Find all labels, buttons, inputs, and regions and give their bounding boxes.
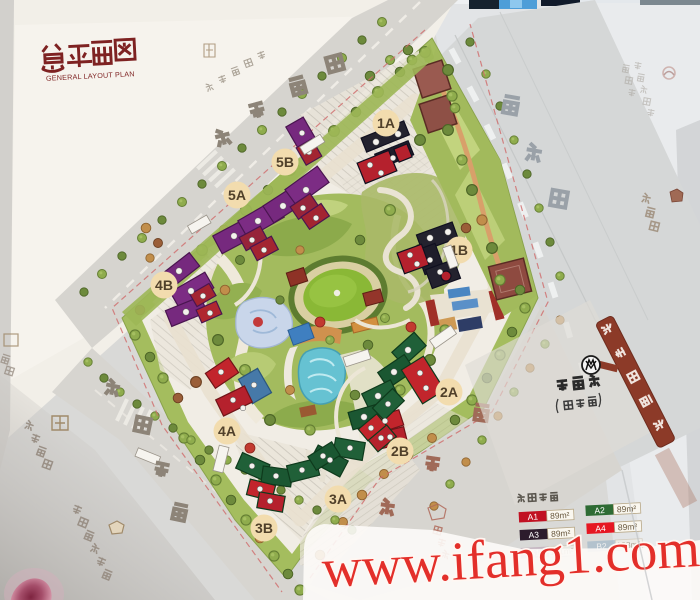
svg-text:5B: 5B <box>276 154 294 170</box>
svg-text:4B: 4B <box>155 277 173 293</box>
svg-text:2B: 2B <box>391 443 409 459</box>
svg-text:3A: 3A <box>329 491 347 507</box>
svg-text:4A: 4A <box>218 423 236 439</box>
svg-text:2A: 2A <box>440 384 458 400</box>
svg-text:A1: A1 <box>527 512 538 523</box>
svg-text:5A: 5A <box>228 187 246 203</box>
svg-text:1A: 1A <box>377 115 395 131</box>
svg-text:89m²: 89m² <box>550 510 570 521</box>
svg-text:A2: A2 <box>594 505 605 516</box>
svg-text:3B: 3B <box>255 520 273 536</box>
svg-text:89m²: 89m² <box>617 503 637 514</box>
